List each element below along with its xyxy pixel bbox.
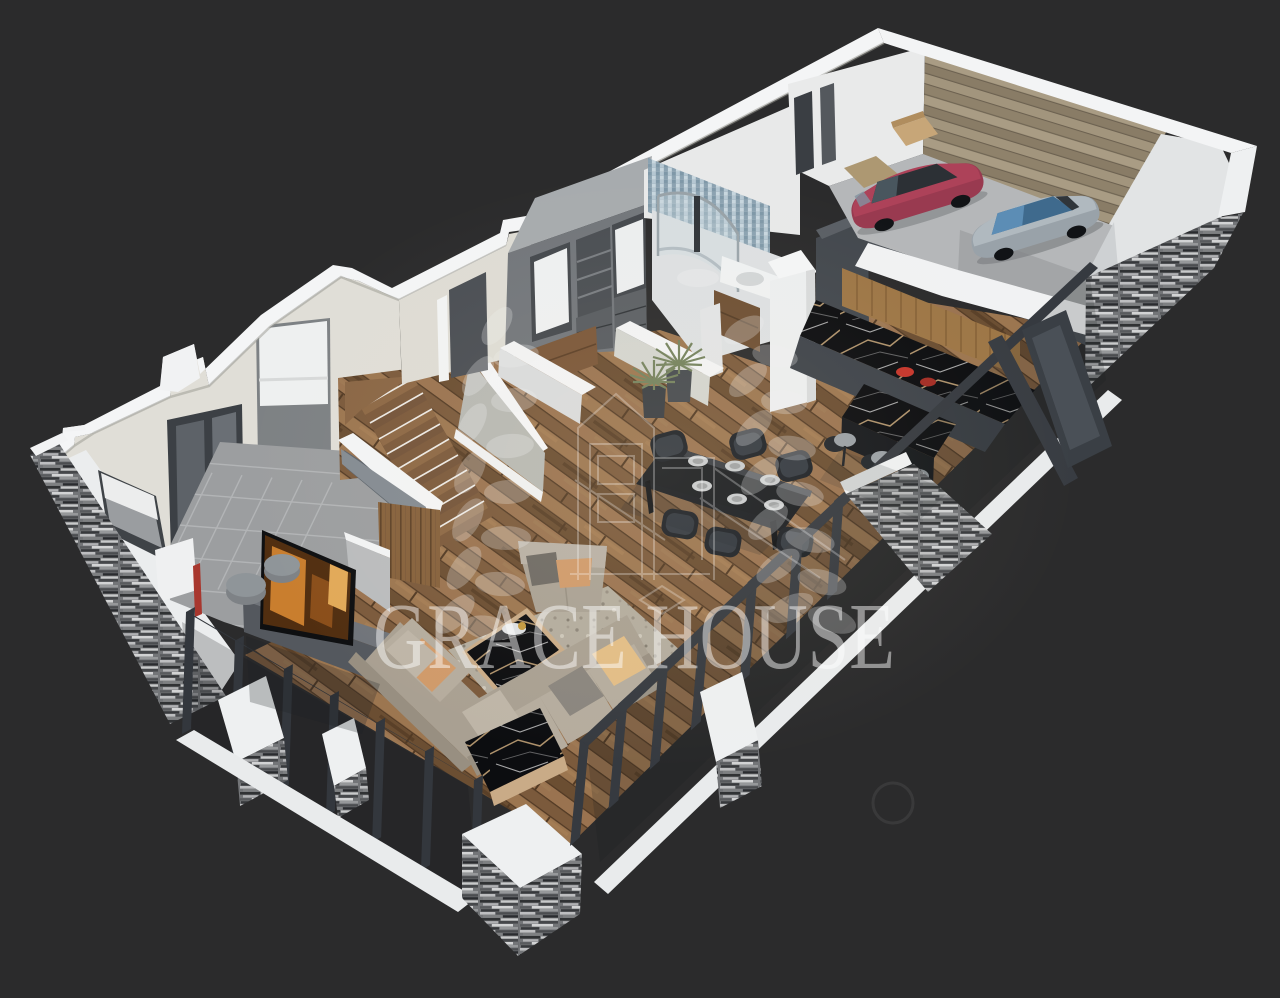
svg-text:GRACE HOUSE: GRACE HOUSE xyxy=(373,585,895,689)
